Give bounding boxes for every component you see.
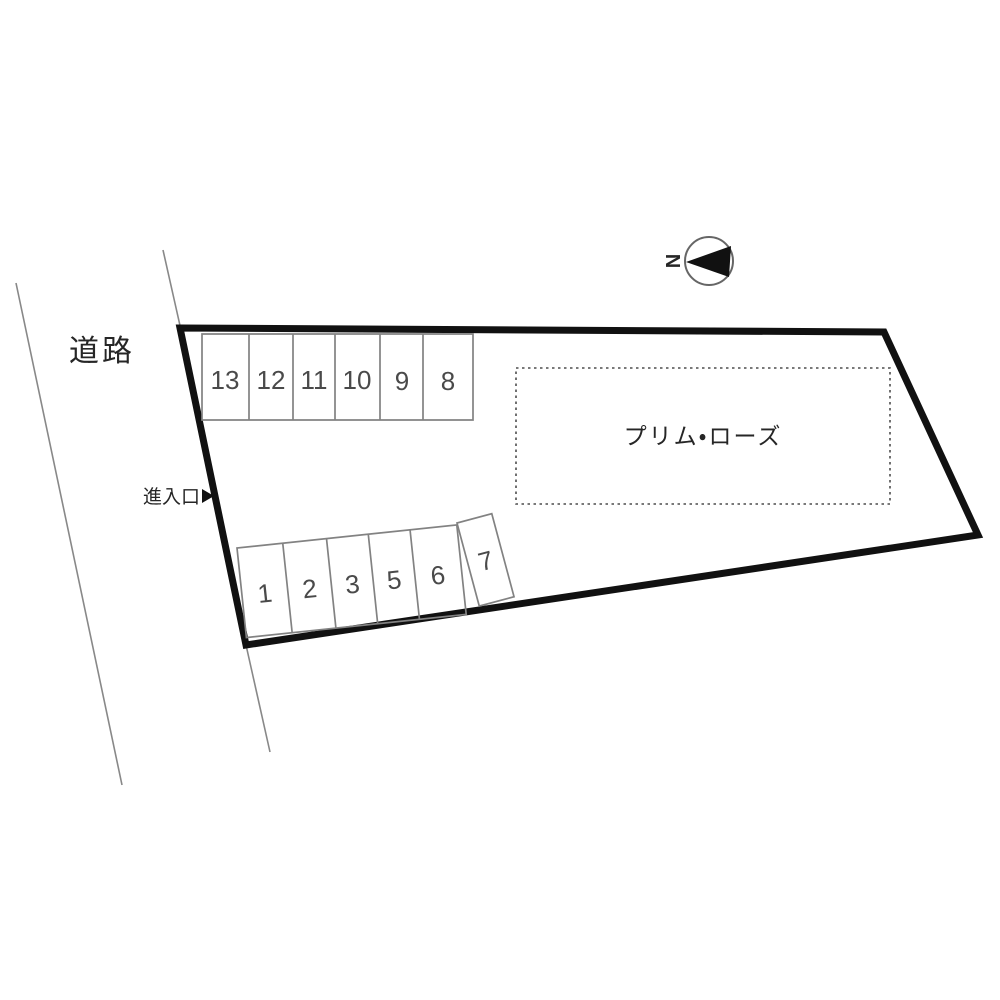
stall-row-top: 13 12 11 10 9 8	[202, 334, 473, 420]
stall-number: 12	[257, 365, 286, 395]
stall-number: 5	[385, 564, 403, 595]
entrance-marker: 進入口	[143, 486, 214, 508]
north-letter: N	[663, 254, 685, 268]
entrance-label: 進入口	[143, 486, 200, 508]
stall-number: 11	[301, 365, 328, 395]
stall-divider	[410, 530, 419, 620]
stall-number: 10	[343, 365, 372, 395]
stall-divider	[368, 534, 377, 624]
building-name: プリム・ローズ	[624, 423, 783, 449]
road-edge-right-lower-line	[246, 645, 270, 752]
road-edge-right-upper-line	[163, 250, 181, 330]
building: プリム・ローズ	[516, 368, 890, 504]
stall-number: 8	[441, 366, 455, 396]
road-label: 道路	[69, 335, 135, 368]
north-compass: N	[663, 237, 733, 285]
parking-site-plan: 13 12 11 10 9 8 プリム・ローズ 1 2 3 5 6	[0, 0, 1000, 1000]
stall-number: 6	[429, 559, 447, 590]
stall-seven: 7	[457, 514, 514, 606]
stall-number: 13	[211, 365, 240, 395]
stall-number: 7	[475, 544, 497, 577]
stall-number: 9	[395, 366, 409, 396]
stall-divider	[327, 539, 336, 629]
stall-number: 3	[344, 568, 362, 599]
stall-row-top-outline	[202, 334, 473, 420]
stall-divider	[283, 543, 292, 633]
north-arrow-icon	[686, 246, 731, 277]
stall-number: 1	[256, 578, 274, 609]
stall-number: 2	[301, 573, 319, 604]
site-plan-svg: 13 12 11 10 9 8 プリム・ローズ 1 2 3 5 6	[0, 0, 1000, 1000]
